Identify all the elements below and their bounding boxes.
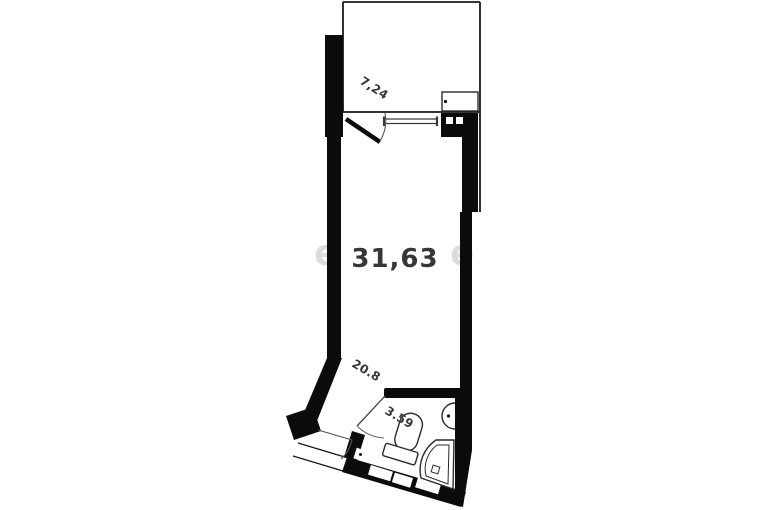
vent-square-2 (456, 117, 463, 124)
balcony-area-label: 7,24 (357, 74, 390, 103)
shower-drain (431, 465, 440, 474)
main-room-area-label: 31,63 (351, 244, 438, 274)
meter-box-dot (359, 453, 362, 456)
window (384, 117, 437, 127)
wall-balcony-left (325, 35, 343, 137)
wall-right-middle (460, 212, 472, 392)
sink-icon (442, 403, 455, 429)
radiator-valve-dot (444, 100, 447, 103)
vent-square-1 (446, 117, 453, 124)
wall-bathroom-top (384, 388, 462, 398)
hallway-dimension-label: 20.8 (349, 357, 383, 385)
floorplan-canvas: e e (0, 0, 770, 510)
wall-main-left (327, 130, 341, 360)
area-labels: 7,24 31,63 20.8 3.59 (349, 74, 438, 432)
entry-threshold-inner (293, 456, 343, 471)
sink-drain-dot (447, 414, 450, 417)
wall-right-upper (462, 113, 478, 212)
wall-right-lower (452, 392, 472, 507)
entry-door-leaf (318, 430, 352, 440)
radiator (442, 92, 478, 111)
floorplan-svg: 7,24 31,63 20.8 3.59 (0, 0, 770, 510)
entry-threshold-outer (298, 443, 348, 458)
bathroom-door-leaf (357, 396, 385, 426)
balcony-door-leaf (346, 119, 380, 142)
radiator-body (442, 92, 478, 111)
